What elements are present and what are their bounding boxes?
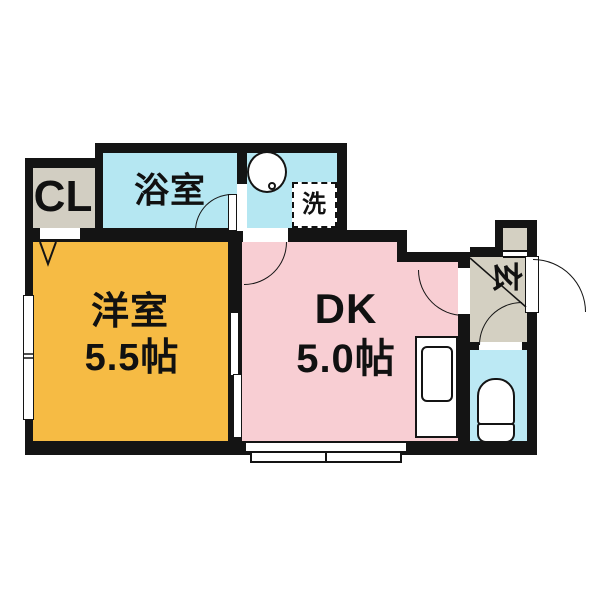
kitchen-sink — [421, 346, 453, 402]
closet-label: CL — [34, 175, 93, 219]
entrance-door-swing — [533, 259, 586, 312]
sink-drain — [268, 182, 276, 190]
western-room-name: 洋室 — [91, 293, 169, 331]
wall-right-upper — [527, 220, 537, 258]
closet-opening — [40, 228, 80, 239]
washing-machine-label: 洗 — [302, 193, 327, 217]
dk-window-inner — [250, 451, 402, 463]
sliding-door-panel-lower — [233, 374, 242, 438]
wall-closet-bath-divider — [95, 143, 103, 230]
western-room-size: 5.5帖 — [85, 339, 180, 377]
washing-machine-space: 洗 — [292, 182, 337, 228]
bath-door-opening — [237, 184, 247, 231]
dk-size: 5.0帖 — [296, 339, 396, 379]
wall-right-lower — [527, 312, 537, 453]
genkan-step — [503, 250, 527, 258]
sliding-door-panel-upper — [230, 312, 239, 376]
washroom-door-opening — [243, 228, 288, 242]
wall-bath-top — [95, 143, 347, 153]
toilet-bowl — [477, 378, 515, 425]
wall-closet-top — [25, 158, 103, 168]
washroom-sink — [247, 151, 287, 193]
toilet-tank — [477, 423, 515, 443]
floor-plan: 洗 CL 浴室 洋室 5.5帖 DK 5.0帖 玄 — [0, 0, 600, 600]
dk-name: DK — [315, 288, 378, 330]
genkan-label: 玄 — [491, 261, 522, 293]
bathroom-label: 浴室 — [134, 174, 206, 209]
western-room-window — [23, 295, 34, 420]
shoebox-floor — [503, 228, 527, 250]
